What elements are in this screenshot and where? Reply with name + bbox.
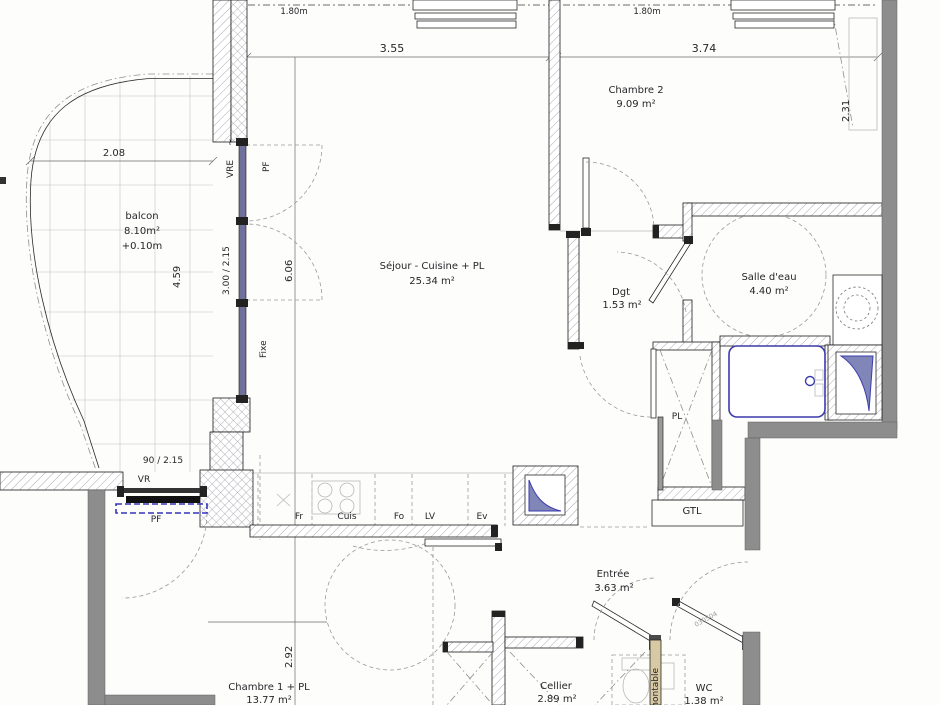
room-area-dgt: 1.53 m² [602, 300, 641, 311]
window-jamb [200, 486, 207, 497]
vr-swing-arc [122, 513, 207, 598]
room-label-entree: Entrée [597, 568, 630, 580]
dim-606: 6.06 [284, 260, 295, 282]
kitchen-unit-ev: Ev [476, 512, 488, 522]
kitchen-unit-lv: LV [425, 512, 436, 522]
dim-374: 3.74 [692, 42, 717, 55]
doors [122, 145, 757, 650]
radiator [849, 18, 877, 130]
kitchen-unit-fr: Fr [295, 512, 304, 522]
dgt-arc [580, 356, 653, 417]
wall [720, 336, 830, 346]
wall [443, 642, 493, 652]
room-label-dgt: Dgt [612, 287, 630, 298]
glazing-joint [236, 138, 248, 146]
dim-208: 2.08 [103, 148, 125, 159]
sliding-door-stop [495, 543, 502, 551]
opening-pf-top: PF [262, 161, 272, 172]
wall [658, 487, 745, 500]
wall [568, 237, 579, 349]
room-label-chambre2: Chambre 2 [608, 85, 663, 96]
window-top-right [731, 0, 835, 28]
closet-label-pl: PL [672, 412, 682, 422]
door-leaf-entrance [675, 600, 747, 644]
glazed-wall [239, 142, 246, 400]
closet-cross-chambre1 [447, 652, 493, 705]
concrete-wall [748, 422, 897, 438]
wc-fitting [660, 663, 674, 689]
door-hinge [581, 228, 591, 236]
window-vr [116, 486, 207, 513]
dim-459: 4.59 [172, 266, 183, 288]
rail-end-mark [0, 177, 6, 184]
wall [683, 203, 692, 241]
room-area-salle-eau: 4.40 m² [749, 286, 788, 297]
room-area-chambre1: 13.77 m² [246, 695, 292, 705]
wall [200, 470, 253, 527]
chambre1-slide-arc [353, 541, 433, 550]
shower-tray [729, 346, 825, 417]
wall-jamb [491, 525, 498, 537]
opening-vre: VRE [226, 160, 236, 178]
wall [549, 0, 560, 230]
floor-plan: balcon 8.10m² +0.10m Séjour - Cuisine + … [0, 0, 940, 705]
wall [213, 0, 231, 142]
wc-pan [623, 669, 649, 703]
glazing-joint [236, 299, 248, 307]
wc-fixtures [612, 655, 685, 705]
balcony-inner-rail [30, 79, 213, 469]
door-arc-entrance [670, 562, 748, 640]
wall-jamb [566, 231, 580, 238]
door-leaf-chambre2 [583, 158, 589, 228]
cross-mark [277, 494, 290, 506]
wall [0, 472, 123, 490]
dim-180-left: 1.80m [280, 7, 307, 17]
concrete-wall [712, 420, 722, 490]
glazing-joint [236, 217, 248, 225]
floor-plan-drawing: balcon 8.10m² +0.10m Séjour - Cuisine + … [0, 0, 940, 705]
wall-jamb [653, 225, 659, 238]
concrete-wall [745, 438, 760, 550]
wall [687, 203, 882, 216]
vanity-unit [833, 275, 882, 345]
wall-jamb [549, 224, 560, 230]
wall-jamb [492, 611, 505, 617]
wall [213, 398, 250, 432]
dim-292: 2.92 [284, 646, 295, 668]
kitchen-unit-fo: Fo [394, 512, 405, 522]
duct-kitchen [513, 466, 578, 525]
window-top-middle [413, 0, 517, 28]
room-area-balcon: 8.10m² [124, 226, 160, 237]
room-label-sejour: Séjour - Cuisine + PL [380, 260, 485, 272]
dim-231: 2.31 [841, 100, 852, 122]
door-leaf-salle-eau [649, 240, 691, 303]
dim-300-215: 3.00 / 2.15 [222, 246, 232, 295]
concrete-wall [743, 632, 760, 705]
wall [653, 342, 720, 350]
door-hinge [684, 236, 693, 244]
wall [210, 432, 243, 472]
opening-pf-bottom: PF [151, 515, 162, 525]
wall [250, 525, 497, 537]
closet-label-gtl: GTL [682, 506, 702, 517]
room-area-cellier: 2.89 m² [537, 694, 576, 705]
closet-cross-cellier [510, 652, 645, 705]
concrete-wall [105, 695, 215, 705]
room-label-cellier: Cellier [540, 681, 573, 692]
room-level-balcon: +0.10m [122, 241, 162, 252]
kitchen-counter [253, 473, 513, 551]
wall-jamb [443, 642, 448, 652]
wall [231, 0, 247, 142]
room-label-chambre1: Chambre 1 + PL [228, 682, 310, 693]
door-arc-chambre2 [586, 162, 654, 228]
closet-sliding-door [658, 417, 663, 490]
concrete-wall [88, 490, 105, 705]
opening-fixe: Fixe [259, 340, 269, 358]
room-label-balcon: balcon [125, 211, 158, 222]
room-area-chambre2: 9.09 m² [616, 99, 655, 110]
room-area-entree: 3.63 m² [594, 583, 633, 594]
dim-90-215: 90 / 2.15 [143, 456, 183, 466]
wall [505, 637, 583, 648]
turning-circle-chambre1 [325, 540, 455, 670]
glazing-joint [236, 395, 248, 403]
dim-180-right: 1.80m [633, 7, 660, 17]
wall-jamb [568, 342, 584, 349]
kitchen-unit-cuis: Cuis [337, 512, 356, 522]
partition-label: démontable [650, 668, 661, 705]
closet-cross-pl [660, 350, 712, 487]
room-label-salle-eau: Salle d'eau [741, 272, 796, 283]
concrete-wall [882, 0, 897, 430]
room-label-wc: WC [696, 683, 713, 694]
opening-vr: VR [138, 475, 150, 485]
room-area-sejour: 25.34 m² [409, 276, 455, 287]
window-frame [121, 488, 205, 493]
dim-ticks [26, 53, 882, 165]
opening-vre-mark: ~ [226, 138, 236, 146]
dim-355: 3.55 [380, 42, 405, 55]
sliding-door-panel [425, 539, 501, 546]
door-leaf-wc [592, 601, 654, 642]
pf-indicator [116, 504, 207, 513]
window-jamb [117, 486, 124, 497]
wall [492, 611, 505, 705]
wc-cistern [622, 658, 652, 670]
room-area-wc: 1.38 m² [684, 696, 723, 705]
duct-salle-eau [828, 345, 882, 420]
window-sash [126, 496, 200, 503]
cooktop-burners [318, 483, 354, 513]
wall-jamb [576, 637, 583, 648]
wall [683, 300, 692, 346]
closet-sliding-door [651, 349, 656, 418]
